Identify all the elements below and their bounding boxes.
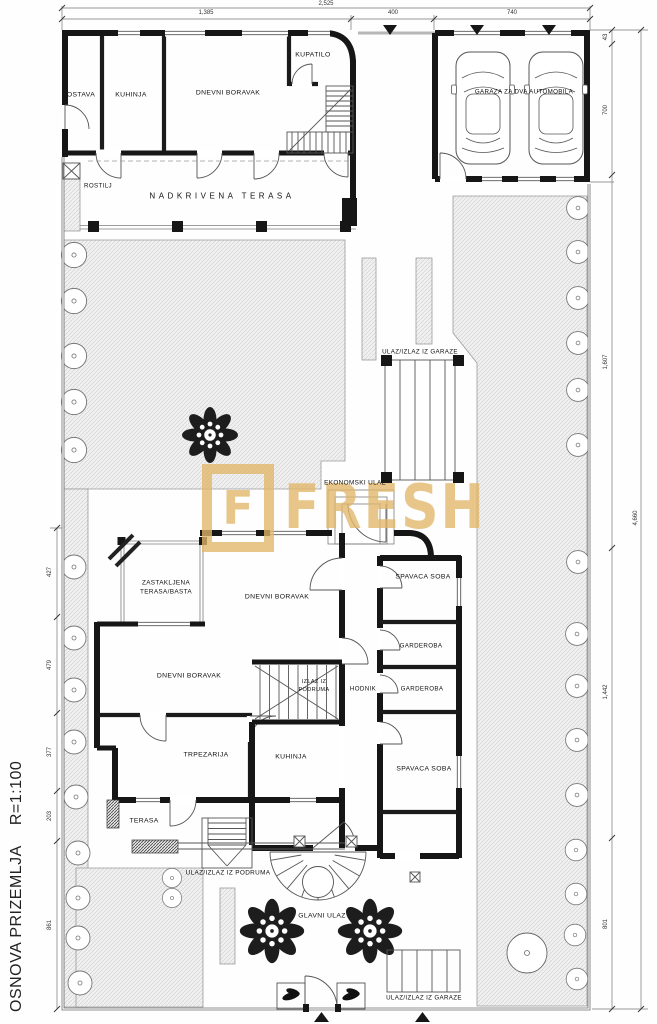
label-glavni-ulaz: GLAVNI ULAZ: [298, 913, 346, 920]
label-izlaz-iz-podruma-1: IZLAZ IZ: [302, 679, 327, 685]
label-ulaz-izlaz-garaze-bottom: ULAZ/IZLAZ IZ GARAZE: [386, 995, 462, 1002]
plan-title-scale: R=1:100: [8, 761, 25, 825]
room-label-zastakljena-2: TERASA/BASTA: [140, 589, 192, 596]
label-ulaz-izlaz-podruma: ULAZ/IZLAZ IZ PODRUMA: [186, 870, 271, 877]
room-label-kuhinja-low: KUHINJA: [275, 754, 307, 761]
dim-top-3: 740: [507, 10, 517, 16]
dim-right-total: 4,660: [633, 510, 639, 525]
dim-left-1: 427: [47, 567, 53, 577]
room-label-rostilj: ROSTILJ: [84, 183, 112, 190]
dim-top-total: 2,525: [318, 1, 333, 7]
room-label-kupatilo: KUPATILO: [295, 52, 330, 59]
plan-title-name: OSNOVA PRIZEMLJA: [8, 845, 25, 1012]
room-label-hodnik: HODNIK: [350, 686, 376, 693]
room-label-garaza: GARAZA ZA DVA AUTOMOBILA: [475, 89, 573, 96]
dim-top-1: 1,385: [198, 10, 213, 16]
watermark: F FRESH: [202, 464, 486, 552]
room-label-dnevni-boravak-mid: DNEVNI BORAVAK: [245, 594, 309, 601]
watermark-logo-letter: F: [222, 481, 253, 535]
dim-right-5: 801: [603, 919, 609, 929]
room-label-nadkrivena-terasa: NADKRIVENA TERASA: [149, 192, 294, 201]
room-label-kuhinja-top: KUHINJA: [115, 92, 147, 99]
room-label-ostava: OSTAVA: [67, 92, 95, 99]
dim-left-4: 203: [47, 811, 53, 821]
room-label-garderoba-2: GARDEROBA: [401, 686, 444, 693]
room-label-spavaca-soba-1: SPAVACA SOBA: [395, 574, 450, 581]
room-label-trpezarija: TRPEZARIJA: [183, 752, 228, 759]
plan-title: OSNOVA PRIZEMLJAR=1:100: [8, 761, 26, 1012]
dim-right-4: 1,442: [603, 684, 609, 699]
room-label-zastakljena-1: ZASTAKLJENA: [142, 580, 190, 587]
dim-top-2: 400: [388, 10, 398, 16]
label-ekonomski-ulaz: EKONOMSKI ULAZ: [324, 480, 386, 487]
watermark-logo-icon: F: [202, 464, 274, 552]
dim-left-2: 479: [47, 660, 53, 670]
room-label-spavaca-soba-2: SPAVACA SOBA: [396, 766, 451, 773]
dim-right-2: 700: [603, 105, 609, 115]
dim-right-1: 43: [603, 34, 609, 41]
garage: [383, 25, 590, 183]
floor-plan-canvas: F FRESH OSTAVA KUHINJA DNEVNI BORAVAK KU…: [0, 0, 657, 1024]
room-label-dnevni-boravak-low: DNEVNI BORAVAK: [157, 673, 221, 680]
dim-left-3: 377: [47, 747, 53, 757]
room-label-garderoba-1: GARDEROBA: [400, 643, 443, 650]
room-label-dnevni-boravak-top: DNEVNI BORAVAK: [196, 90, 260, 97]
label-izlaz-iz-podruma-2: PODRUMA: [298, 687, 329, 693]
room-label-terasa: TERASA: [129, 818, 158, 825]
dim-left-5: 861: [47, 920, 53, 930]
upper-building: [62, 30, 358, 233]
label-ulaz-izlaz-garaze-top: ULAZ/IZLAZ IZ GARAZE: [382, 349, 458, 356]
dim-right-3: 1,607: [603, 354, 609, 369]
